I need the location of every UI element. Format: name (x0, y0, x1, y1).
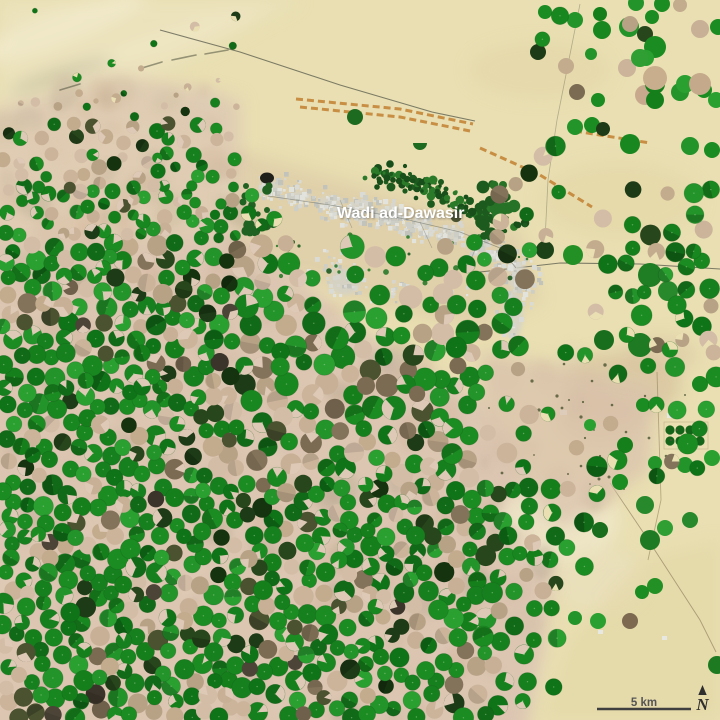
svg-text:5 km: 5 km (631, 697, 657, 709)
svg-text:Wadi ad-Dawasir: Wadi ad-Dawasir (337, 205, 464, 222)
svg-text:N: N (695, 695, 709, 714)
